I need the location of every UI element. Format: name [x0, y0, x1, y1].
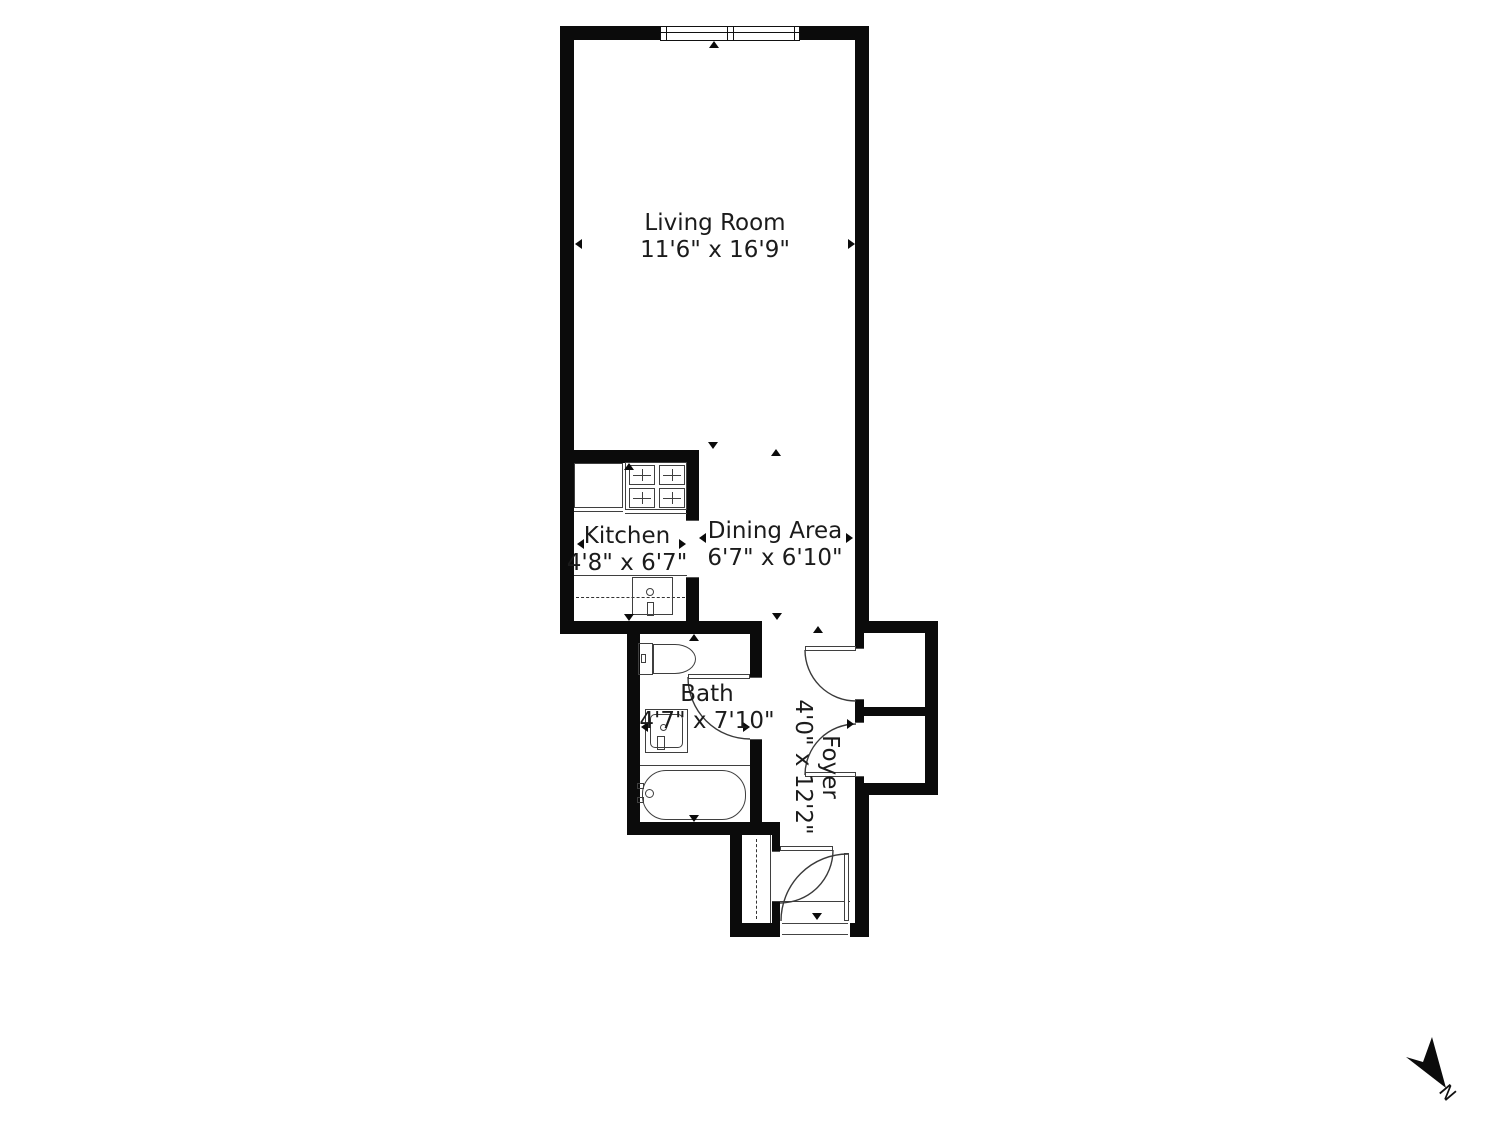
wall-closets-bottom	[855, 783, 938, 795]
wall-hall-closet-stub-bottom	[772, 901, 780, 923]
wall-bottom-left	[730, 923, 780, 937]
dimension-arrow	[624, 614, 634, 621]
bathtub-icon	[642, 770, 746, 820]
window-icon	[660, 26, 800, 41]
stove-burner-icon	[629, 488, 655, 508]
north-label: N	[1434, 1080, 1460, 1105]
entry-door-leaf	[844, 853, 849, 921]
living-room-label: Living Room 11'6" x 16'9"	[605, 210, 825, 264]
stove-base-line	[625, 513, 687, 514]
dimension-arrow	[813, 626, 823, 633]
dimension-arrow	[772, 613, 782, 620]
hall-closet-dashed-line	[756, 839, 757, 919]
dining-area-label: Dining Area 6'7" x 6'10"	[665, 518, 885, 572]
entry-door-arc	[781, 854, 848, 921]
closet2-door-jamb	[855, 722, 864, 723]
dimension-arrow	[847, 719, 854, 729]
room-name: Dining Area	[665, 518, 885, 545]
kitchen-opening-jamb	[686, 577, 699, 578]
toilet-bowl-icon	[653, 644, 696, 674]
entry-threshold	[782, 923, 848, 935]
kitchen-faucet-icon	[646, 588, 654, 596]
foyer-label: Foyer 4'0" x 12'2"	[789, 697, 843, 837]
foyer-vestibule-line	[772, 901, 850, 902]
room-dimensions: 4'0" x 12'2"	[789, 697, 816, 837]
wall-kitchen-bottom-bath-top	[560, 621, 762, 634]
room-dimensions: 6'7" x 6'10"	[665, 545, 885, 572]
bath-sink-stem	[657, 736, 665, 750]
wall-bath-right-lower	[750, 740, 762, 835]
dimension-arrow	[575, 239, 582, 249]
bath-door-jamb	[750, 677, 762, 678]
dimension-arrow	[689, 815, 699, 822]
wall-closets-divider	[864, 707, 925, 716]
dimension-arrow	[708, 442, 718, 449]
closet1-door-leaf	[805, 646, 856, 651]
hall-closet-door-leaf	[780, 846, 833, 851]
dimension-arrow	[624, 463, 634, 470]
wall-closets-right	[925, 621, 938, 795]
wall-hall-closet-left	[730, 829, 742, 937]
wall-top-left	[560, 26, 662, 40]
north-arrow-icon	[1406, 1037, 1446, 1088]
dimension-arrow	[689, 634, 699, 641]
dimension-arrow	[709, 41, 719, 48]
room-dimensions: 11'6" x 16'9"	[605, 237, 825, 264]
tub-faucet-spout	[645, 789, 654, 798]
wall-bath-right-upper	[750, 621, 762, 677]
wall-closets-left-a	[855, 622, 864, 648]
room-name: Foyer	[816, 697, 843, 837]
hall-closet-door-jamb	[772, 851, 780, 852]
wall-foyer-right	[855, 795, 869, 937]
bath-door-jamb	[750, 739, 762, 740]
dimension-arrow	[848, 239, 855, 249]
bath-label: Bath 4'7" x 7'10"	[617, 681, 797, 735]
refrigerator-base-line	[574, 511, 623, 512]
hall-closet-door-arc	[780, 850, 833, 903]
toilet-flush-button	[641, 654, 646, 663]
closet1-door-jamb	[855, 648, 864, 649]
dimension-arrow	[771, 449, 781, 456]
wall-kitchen-right-upper	[686, 450, 699, 520]
closet1-door-jamb	[855, 699, 864, 700]
tub-alcove-line	[640, 765, 750, 766]
wall-closets-left-b	[855, 700, 864, 722]
closet2-door-jamb	[855, 776, 864, 777]
dimension-arrow	[812, 913, 822, 920]
tub-faucet-handle	[637, 783, 644, 789]
bath-door-leaf	[688, 674, 750, 679]
room-name: Living Room	[605, 210, 825, 237]
wall-hall-closet-stub-top	[772, 835, 780, 851]
wall-bath-bottom	[627, 822, 780, 835]
refrigerator-icon	[574, 463, 623, 508]
tub-faucet-handle	[637, 797, 644, 803]
room-name: Bath	[617, 681, 797, 708]
hall-closet-inner-line	[770, 835, 771, 923]
stove-burner-icon	[659, 465, 685, 485]
room-dimensions: 4'7" x 7'10"	[617, 708, 797, 735]
stove-burner-icon	[659, 488, 685, 508]
closet1-door-arc	[805, 650, 856, 701]
kitchen-faucet-stem	[647, 602, 654, 616]
floor-plan: Living Room 11'6" x 16'9" Kitchen 4'8" x…	[0, 0, 1500, 1125]
